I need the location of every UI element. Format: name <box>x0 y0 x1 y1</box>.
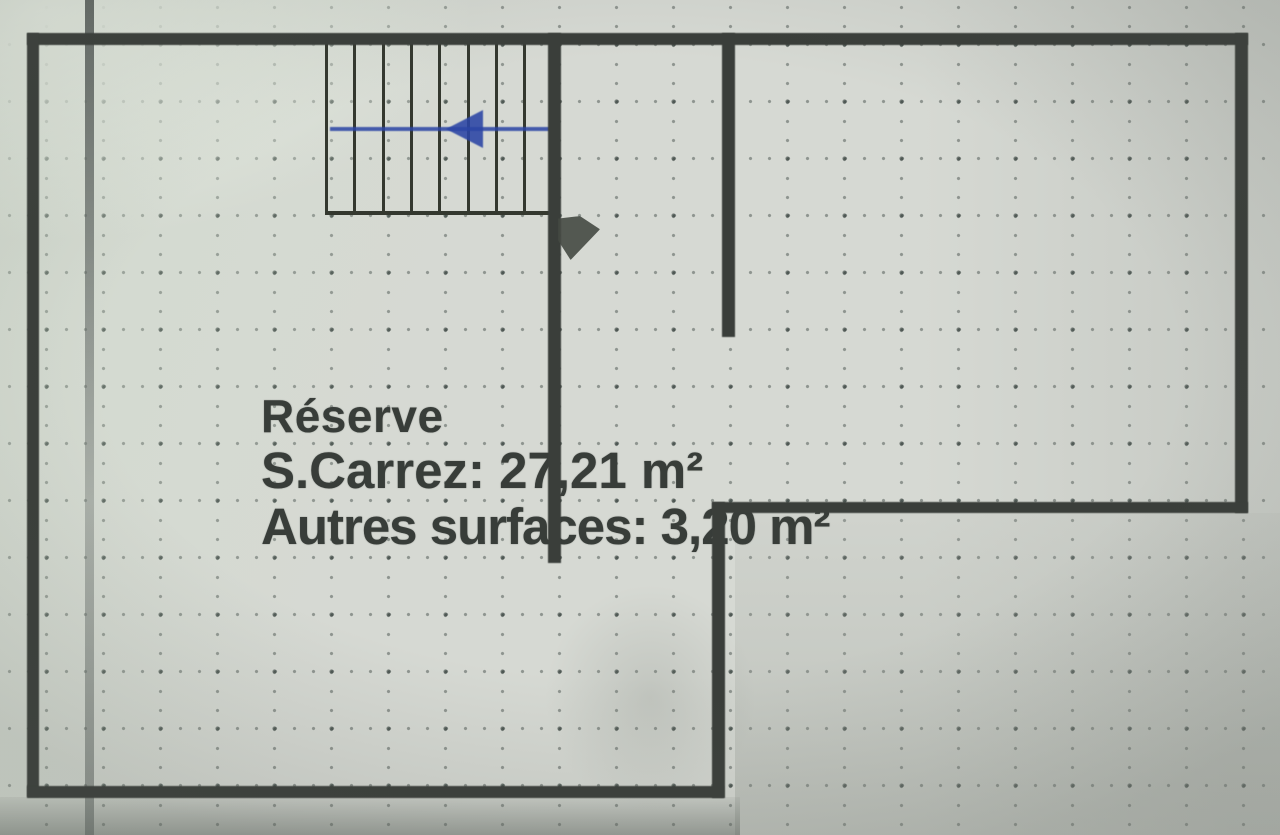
grid-paper <box>0 0 1280 835</box>
stair-arrow-icon <box>446 110 483 148</box>
room-label: Réserve <box>261 392 444 440</box>
wall-top <box>27 33 1248 45</box>
wall-bottom <box>27 786 724 798</box>
wall-step-vertical <box>712 502 725 798</box>
floorplan-photo: Réserve S.Carrez: 27,21 m² Autres surfac… <box>0 0 1280 835</box>
stair-direction-line <box>330 127 550 131</box>
carrez-area-label: S.Carrez: 27,21 m² <box>261 444 703 498</box>
wall-left <box>27 33 39 797</box>
paper-fold-line <box>85 0 94 835</box>
stair-left-edge <box>325 43 328 215</box>
wall-step-horizontal <box>712 502 1248 513</box>
wall-right <box>1235 33 1248 513</box>
wall-partition <box>722 33 735 337</box>
wall-stair-right <box>548 33 561 563</box>
